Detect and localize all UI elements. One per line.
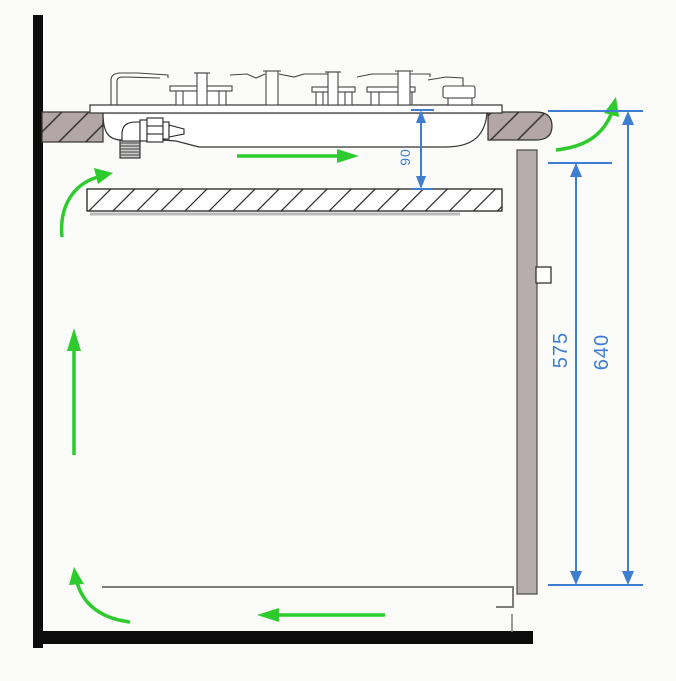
hob-burners-art [111, 71, 475, 105]
floor-section [33, 631, 533, 644]
dim-90-down-arrowhead [416, 176, 426, 189]
toe-kick-inlet-arrowhead [69, 567, 84, 585]
installation-diagram: 90 575 640 [0, 0, 676, 681]
cabinet-bottom-arrowhead [257, 608, 279, 622]
behind-panel-exit-arrow [556, 112, 612, 150]
hob-top-plate [90, 105, 502, 113]
countertop-right-section [488, 112, 552, 140]
dimension-label-575: 575 [547, 315, 575, 385]
cabinet-front-up-arrowhead [94, 168, 113, 184]
dim-640-down-arrowhead [622, 571, 634, 585]
under-hob-arrowhead [337, 149, 359, 163]
cabinet-interior-up-arrowhead [67, 328, 81, 351]
panel-bracket [536, 267, 551, 283]
intermediate-shelf [87, 189, 502, 211]
dim-575-down-arrowhead [570, 571, 582, 585]
countertop-left-section [42, 112, 103, 142]
dim-575-up-arrowhead [570, 163, 582, 177]
cabinet-bottom-panel [102, 587, 513, 607]
behind-panel-exit-arrowhead [604, 97, 619, 117]
dimension-label-90: 90 [393, 137, 417, 177]
dimension-label-640: 640 [588, 317, 616, 387]
back-panel [517, 150, 537, 594]
wall-section [33, 15, 43, 648]
dim-640-up-arrowhead [622, 111, 634, 125]
